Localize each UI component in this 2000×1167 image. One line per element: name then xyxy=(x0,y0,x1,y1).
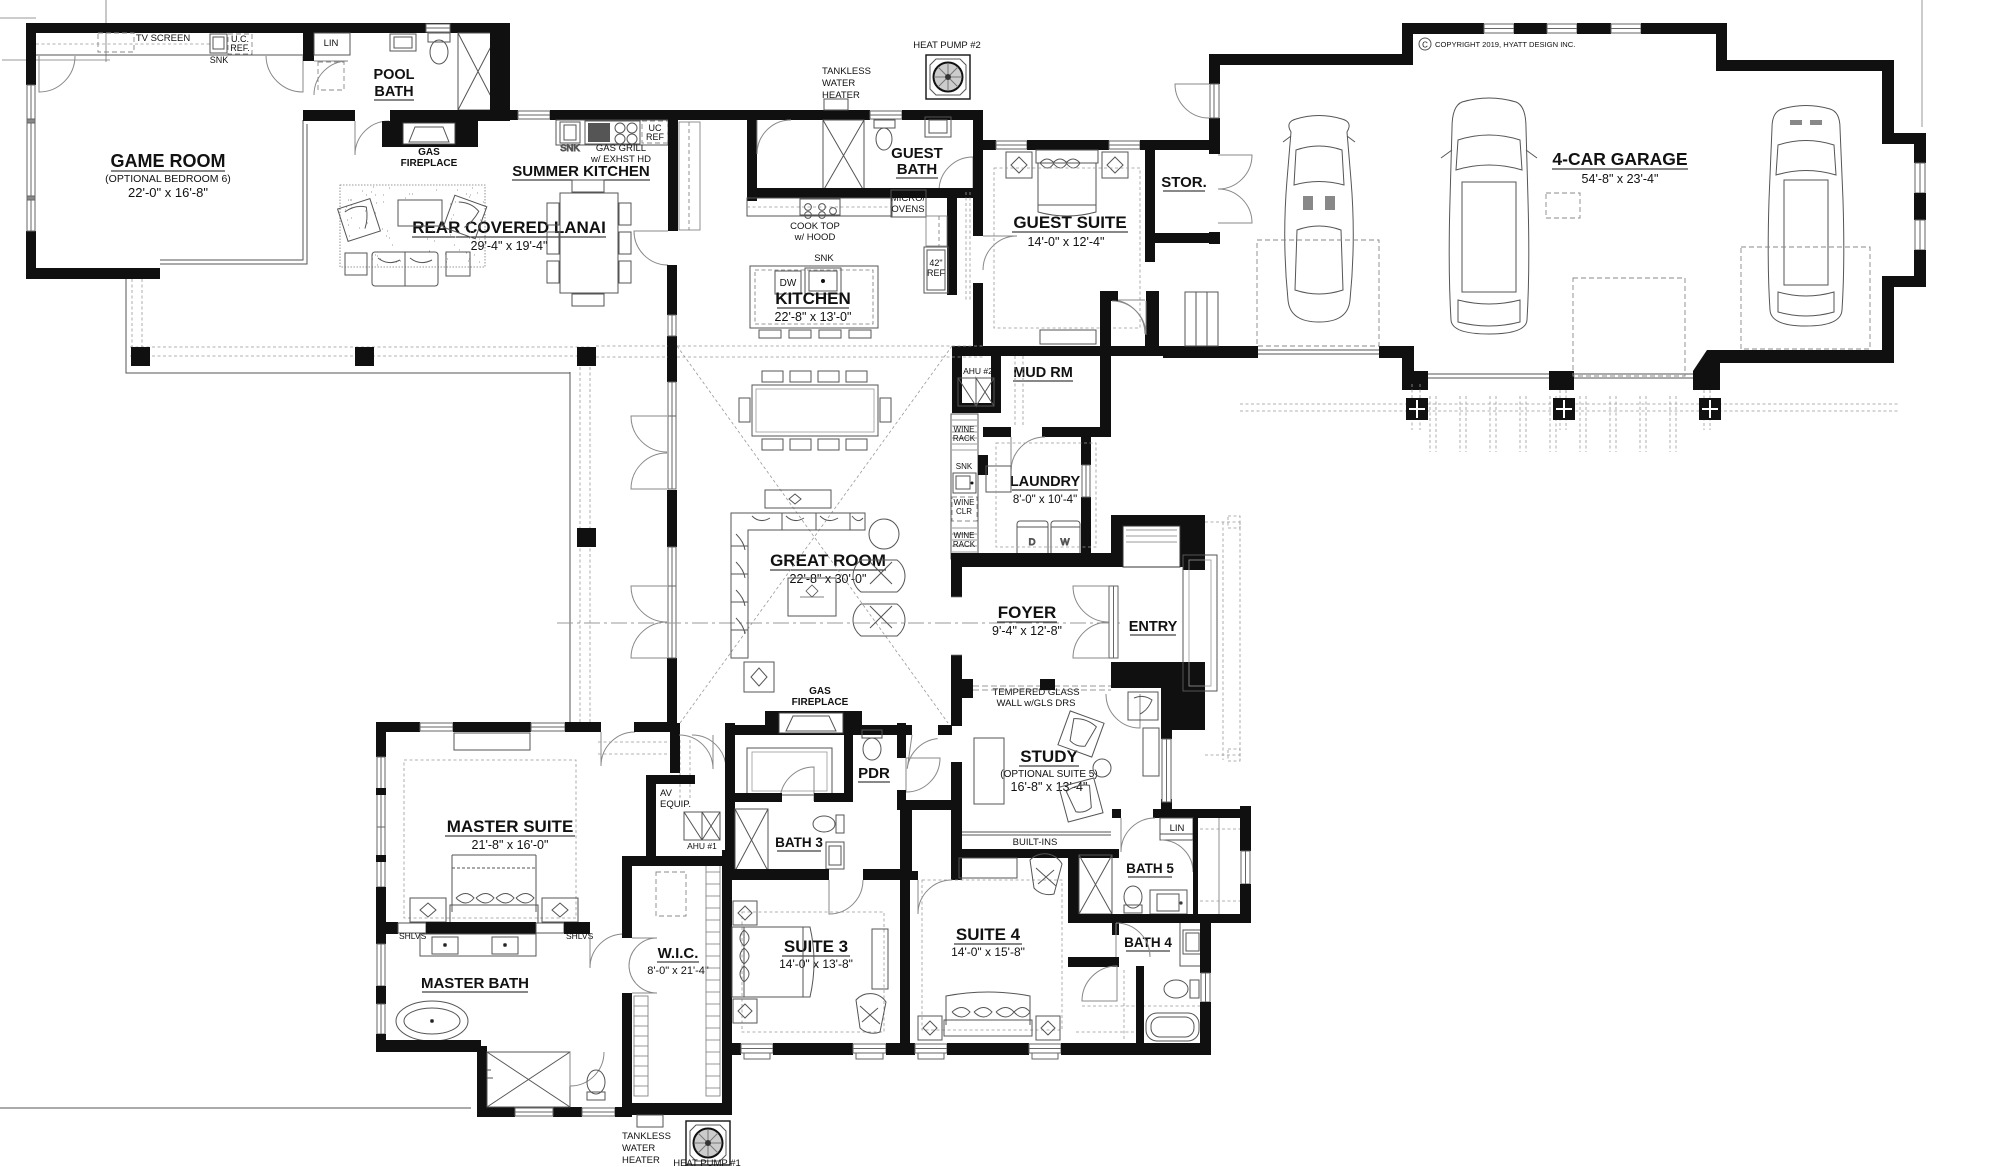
svg-text:C: C xyxy=(1422,41,1428,50)
svg-text:HEAT PUMP #2: HEAT PUMP #2 xyxy=(913,40,981,51)
svg-text:REF.: REF. xyxy=(230,43,250,53)
svg-text:WALL w/GLS DRS: WALL w/GLS DRS xyxy=(996,698,1075,709)
svg-text:WATER: WATER xyxy=(822,78,855,89)
svg-text:AHU #1: AHU #1 xyxy=(687,841,717,851)
svg-text:D: D xyxy=(1029,537,1036,548)
svg-text:GAME ROOM: GAME ROOM xyxy=(111,151,226,171)
svg-text:HEATER: HEATER xyxy=(622,1155,660,1166)
svg-text:REF: REF xyxy=(646,132,665,142)
svg-text:TV SCREEN: TV SCREEN xyxy=(136,33,191,44)
svg-text:WINE: WINE xyxy=(954,425,975,434)
svg-text:STUDY: STUDY xyxy=(1020,747,1078,766)
svg-text:21'-8" x 16'-0": 21'-8" x 16'-0" xyxy=(472,838,549,852)
svg-text:TANKLESS: TANKLESS xyxy=(622,1131,671,1142)
svg-text:14'-0" x 13'-8": 14'-0" x 13'-8" xyxy=(779,957,853,971)
svg-text:54'-8" x 23'-4": 54'-8" x 23'-4" xyxy=(1582,172,1659,186)
svg-text:BATH 4: BATH 4 xyxy=(1124,935,1172,950)
svg-text:SNK: SNK xyxy=(814,253,834,264)
svg-text:W.I.C.: W.I.C. xyxy=(658,945,699,962)
svg-text:BATH 3: BATH 3 xyxy=(775,835,823,850)
svg-text:EQUIP.: EQUIP. xyxy=(660,799,691,810)
svg-text:AHU #2: AHU #2 xyxy=(963,366,993,376)
svg-text:TANKLESS: TANKLESS xyxy=(822,66,871,77)
svg-text:LIN: LIN xyxy=(1170,823,1185,834)
svg-text:AV: AV xyxy=(660,788,673,799)
svg-text:FIREPLACE: FIREPLACE xyxy=(401,158,458,169)
svg-text:BATH: BATH xyxy=(374,84,413,100)
svg-text:GAS GRILL: GAS GRILL xyxy=(596,143,646,154)
svg-text:(OPTIONAL SUITE 5): (OPTIONAL SUITE 5) xyxy=(1000,769,1097,780)
svg-text:PDR: PDR xyxy=(858,765,890,782)
svg-text:REF: REF xyxy=(927,268,946,278)
svg-text:WINE: WINE xyxy=(954,531,975,540)
svg-text:HEAT PUMP #1: HEAT PUMP #1 xyxy=(673,1158,741,1167)
svg-text:ENTRY: ENTRY xyxy=(1129,619,1178,635)
svg-text:16'-8" x 13'-4": 16'-8" x 13'-4" xyxy=(1011,780,1088,794)
svg-text:RACK: RACK xyxy=(953,434,976,443)
svg-text:22'-0" x 16'-8": 22'-0" x 16'-8" xyxy=(128,185,208,200)
svg-text:BATH 5: BATH 5 xyxy=(1126,861,1174,876)
svg-text:COOK TOP: COOK TOP xyxy=(790,221,840,232)
svg-text:14'-0" x 15'-8": 14'-0" x 15'-8" xyxy=(951,945,1025,959)
svg-text:DW: DW xyxy=(780,278,797,289)
svg-text:HEATER: HEATER xyxy=(822,90,860,101)
svg-text:WINE: WINE xyxy=(954,498,975,507)
svg-text:LIN: LIN xyxy=(324,38,339,49)
svg-text:CLR: CLR xyxy=(956,507,972,516)
svg-text:KITCHEN: KITCHEN xyxy=(775,289,851,308)
svg-text:29'-4" x 19'-4": 29'-4" x 19'-4" xyxy=(471,239,548,253)
svg-text:MUD RM: MUD RM xyxy=(1013,365,1073,381)
svg-text:4-CAR GARAGE: 4-CAR GARAGE xyxy=(1552,149,1687,169)
svg-text:SHLVS: SHLVS xyxy=(399,931,427,941)
svg-text:COPYRIGHT 2019, HYATT DESIGN I: COPYRIGHT 2019, HYATT DESIGN INC. xyxy=(1435,40,1575,49)
svg-text:OVENS: OVENS xyxy=(891,204,924,215)
svg-text:FIREPLACE: FIREPLACE xyxy=(792,697,849,708)
svg-text:SUITE 4: SUITE 4 xyxy=(956,925,1021,944)
svg-text:W: W xyxy=(1061,537,1070,548)
svg-text:BUILT-INS: BUILT-INS xyxy=(1013,837,1058,848)
svg-text:MASTER BATH: MASTER BATH xyxy=(421,975,529,992)
svg-text:GAS: GAS xyxy=(418,147,440,158)
svg-text:SNK: SNK xyxy=(210,55,229,65)
svg-text:TEMPERED GLASS: TEMPERED GLASS xyxy=(992,687,1079,698)
svg-text:FOYER: FOYER xyxy=(998,603,1057,622)
svg-text:SNK: SNK xyxy=(956,462,973,471)
svg-text:MASTER SUITE: MASTER SUITE xyxy=(447,817,574,836)
svg-text:REAR COVERED LANAI: REAR COVERED LANAI xyxy=(412,218,606,237)
svg-text:SUMMER KITCHEN: SUMMER KITCHEN xyxy=(512,163,650,180)
svg-text:8'-0" x 10'-4": 8'-0" x 10'-4" xyxy=(1013,494,1077,506)
svg-text:WATER: WATER xyxy=(622,1143,655,1154)
svg-text:BATH: BATH xyxy=(897,161,938,178)
svg-text:GUEST: GUEST xyxy=(891,145,943,162)
svg-text:42": 42" xyxy=(929,258,942,268)
svg-text:SNK: SNK xyxy=(560,143,580,154)
svg-text:POOL: POOL xyxy=(373,67,414,83)
svg-text:LAUNDRY: LAUNDRY xyxy=(1010,474,1081,490)
svg-text:(OPTIONAL BEDROOM 6): (OPTIONAL BEDROOM 6) xyxy=(105,173,231,185)
svg-text:9'-4" x 12'-8": 9'-4" x 12'-8" xyxy=(992,624,1062,638)
svg-text:22'-8" x 13'-0": 22'-8" x 13'-0" xyxy=(775,310,852,324)
svg-text:STOR.: STOR. xyxy=(1161,174,1207,191)
svg-text:14'-0" x 12'-4": 14'-0" x 12'-4" xyxy=(1028,235,1105,249)
svg-text:SUITE 3: SUITE 3 xyxy=(784,937,848,956)
svg-text:8'-0" x 21'-4": 8'-0" x 21'-4" xyxy=(647,965,709,977)
svg-text:MICRO/: MICRO/ xyxy=(891,193,926,204)
svg-text:w/ HOOD: w/ HOOD xyxy=(794,232,836,243)
svg-text:RACK: RACK xyxy=(953,540,976,549)
svg-text:GAS: GAS xyxy=(809,686,831,697)
